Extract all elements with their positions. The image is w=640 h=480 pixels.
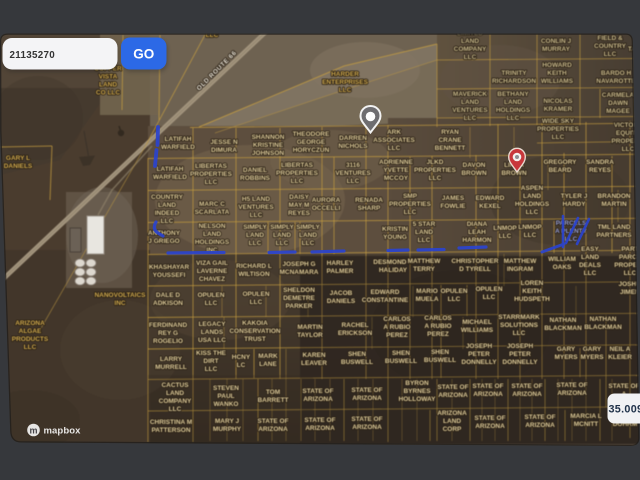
svg-text:NEIL AKLEIER: NEIL AKLEIER	[608, 346, 632, 361]
svg-text:MARIOMUELA: MARIOMUELA	[415, 288, 438, 303]
svg-text:KHASHAYARYOUSSEFI: KHASHAYARYOUSSEFI	[149, 264, 190, 279]
svg-text:AURORAOCCELLI: AURORAOCCELLI	[312, 197, 341, 212]
svg-text:JAMESFOWLIE: JAMESFOWLIE	[440, 195, 466, 210]
svg-text:TYLER JHARDY: TYLER JHARDY	[561, 193, 588, 208]
svg-text:LATIFAHWARFIELD: LATIFAHWARFIELD	[161, 136, 195, 151]
svg-text:STATE OFARIZONA: STATE OFARIZONA	[556, 382, 587, 397]
svg-text:MARCIA LMCNITT: MARCIA LMCNITT	[570, 413, 602, 428]
svg-text:CARLOSA RUBIOPEREZ: CARLOSA RUBIOPEREZ	[424, 315, 452, 338]
svg-text:KARENLEAVER: KARENLEAVER	[301, 352, 327, 367]
svg-text:GO: GO	[133, 47, 154, 62]
svg-text:MARKLANE: MARKLANE	[258, 353, 278, 368]
svg-text:DANIELROBBINS: DANIELROBBINS	[240, 167, 271, 182]
svg-text:CONLIN JMURRAY: CONLIN JMURRAY	[541, 38, 572, 53]
svg-text:JACOBDANIELS: JACOBDANIELS	[327, 290, 356, 305]
svg-text:STATE OFARIZONA: STATE OFARIZONA	[351, 387, 382, 402]
svg-text:STATE OFARIZONA: STATE OFARIZONA	[437, 384, 468, 399]
svg-text:STATE OFARIZONA: STATE OFARIZONA	[511, 383, 542, 398]
svg-text:35.0098: 35.0098	[609, 404, 640, 416]
svg-text:NATHANBLACKMAN: NATHANBLACKMAN	[544, 317, 582, 332]
svg-text:LATIFAHWARFIELD: LATIFAHWARFIELD	[153, 166, 187, 181]
svg-text:m: m	[29, 425, 37, 435]
svg-text:SHELDONDEMETREPARKER: SHELDONDEMETREPARKER	[283, 287, 315, 310]
svg-text:STATE OFARIZONA: STATE OFARIZONA	[472, 383, 503, 398]
svg-text:21135270: 21135270	[10, 50, 56, 61]
svg-text:DARRENNICHOLS: DARRENNICHOLS	[338, 135, 368, 150]
svg-text:DAVONBROWN: DAVONBROWN	[461, 162, 487, 177]
svg-text:RACHELERICKSON: RACHELERICKSON	[338, 322, 373, 337]
svg-text:TML LANDPARTNERS: TML LANDPARTNERS	[596, 224, 632, 239]
svg-text:RICHARD LWILTISON: RICHARD LWILTISON	[236, 263, 272, 278]
svg-text:GARY LDANIELS: GARY LDANIELS	[4, 155, 33, 170]
svg-text:JESSE NDIMURA: JESSE NDIMURA	[210, 139, 238, 154]
svg-text:SANDRAREYES: SANDRAREYES	[586, 159, 614, 174]
svg-text:MICHAELWILLIAMS: MICHAELWILLIAMS	[461, 319, 494, 334]
svg-text:BARDO HNAVAROTTE: BARDO HNAVAROTTE	[596, 70, 636, 85]
svg-text:HARLEYPALMER: HARLEYPALMER	[327, 260, 355, 275]
svg-text:KRISTINYOUNG: KRISTINYOUNG	[382, 226, 408, 241]
svg-text:JOSEPH GMCNAMARA: JOSEPH GMCNAMARA	[280, 261, 319, 276]
svg-text:GARYMYERS: GARYMYERS	[554, 346, 578, 361]
svg-text:STATE OFARIZONA: STATE OFARIZONA	[474, 415, 505, 430]
svg-text:SHANNONKRISTINEJOHNSON: SHANNONKRISTINEJOHNSON	[252, 134, 285, 157]
svg-text:CHRISTINA MPATTERSON: CHRISTINA MPATTERSON	[150, 419, 192, 434]
svg-text:LEGACYLANDSUSA LLC: LEGACYLANDSUSA LLC	[198, 321, 226, 344]
svg-text:MATTHEWINGRAM: MATTHEWINGRAM	[504, 258, 538, 273]
svg-text:BRANDONMARTIN: BRANDONMARTIN	[597, 193, 631, 208]
svg-text:DALE DADKISON: DALE DADKISON	[153, 292, 183, 307]
svg-text:NICOLASKRAMER: NICOLASKRAMER	[543, 98, 573, 113]
svg-text:STATE OFARIZONA: STATE OFARIZONA	[302, 388, 333, 403]
svg-text:CARLOSA RUBIOPEREZ: CARLOSA RUBIOPEREZ	[383, 316, 411, 339]
svg-text:EDWARDKEXEL: EDWARDKEXEL	[476, 195, 505, 210]
svg-text:VIZA GAILLAVERNECHAVEZ: VIZA GAILLAVERNECHAVEZ	[196, 260, 228, 283]
svg-text:STATE OFARIZONA: STATE OFARIZONA	[257, 418, 288, 433]
svg-text:MARTINTAYLOR: MARTINTAYLOR	[297, 324, 323, 339]
svg-text:ANTHONYJ GRIEGO: ANTHONYJ GRIEGO	[148, 230, 181, 245]
svg-text:MARY JMURPHY: MARY JMURPHY	[213, 418, 242, 433]
svg-text:THEODOREGEORGEHORYCZUN: THEODOREGEORGEHORYCZUN	[293, 131, 331, 154]
svg-text:NATHANBLACKMAN: NATHANBLACKMAN	[584, 316, 622, 331]
svg-text:DAISYMAY MREYES: DAISYMAY MREYES	[288, 194, 311, 217]
svg-text:GARYMYERS: GARYMYERS	[580, 346, 604, 361]
svg-text:STATE OFARIZONA: STATE OFARIZONA	[524, 414, 555, 429]
svg-text:MARC CSCARLATA: MARC CSCARLATA	[195, 201, 230, 216]
svg-text:STATE OFARIZONA: STATE OFARIZONA	[351, 416, 382, 431]
svg-text:RENADASHARP: RENADASHARP	[355, 197, 383, 212]
svg-text:mapbox: mapbox	[44, 426, 82, 437]
svg-text:STATE OFARIZONA: STATE OFARIZONA	[304, 417, 335, 432]
